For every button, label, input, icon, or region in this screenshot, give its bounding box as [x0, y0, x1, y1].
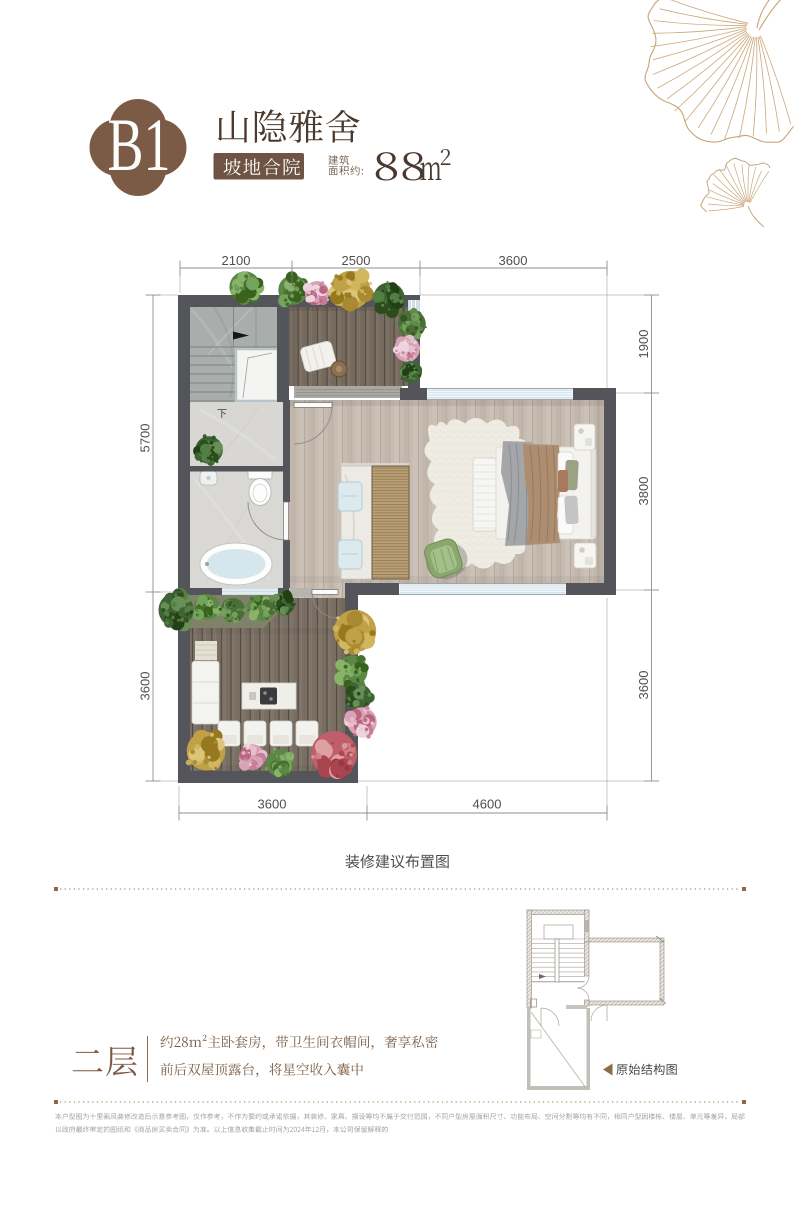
svg-text:4600: 4600 — [473, 797, 502, 812]
svg-text:3600: 3600 — [499, 253, 528, 268]
svg-text:1900: 1900 — [636, 330, 651, 359]
svg-text:3800: 3800 — [636, 477, 651, 506]
svg-text:2100: 2100 — [222, 253, 251, 268]
svg-text:3600: 3600 — [258, 797, 287, 812]
svg-text:5700: 5700 — [138, 424, 153, 453]
svg-text:3600: 3600 — [138, 672, 153, 701]
svg-text:B1: B1 — [107, 105, 170, 188]
svg-text:2500: 2500 — [342, 253, 371, 268]
svg-text:3600: 3600 — [636, 671, 651, 700]
